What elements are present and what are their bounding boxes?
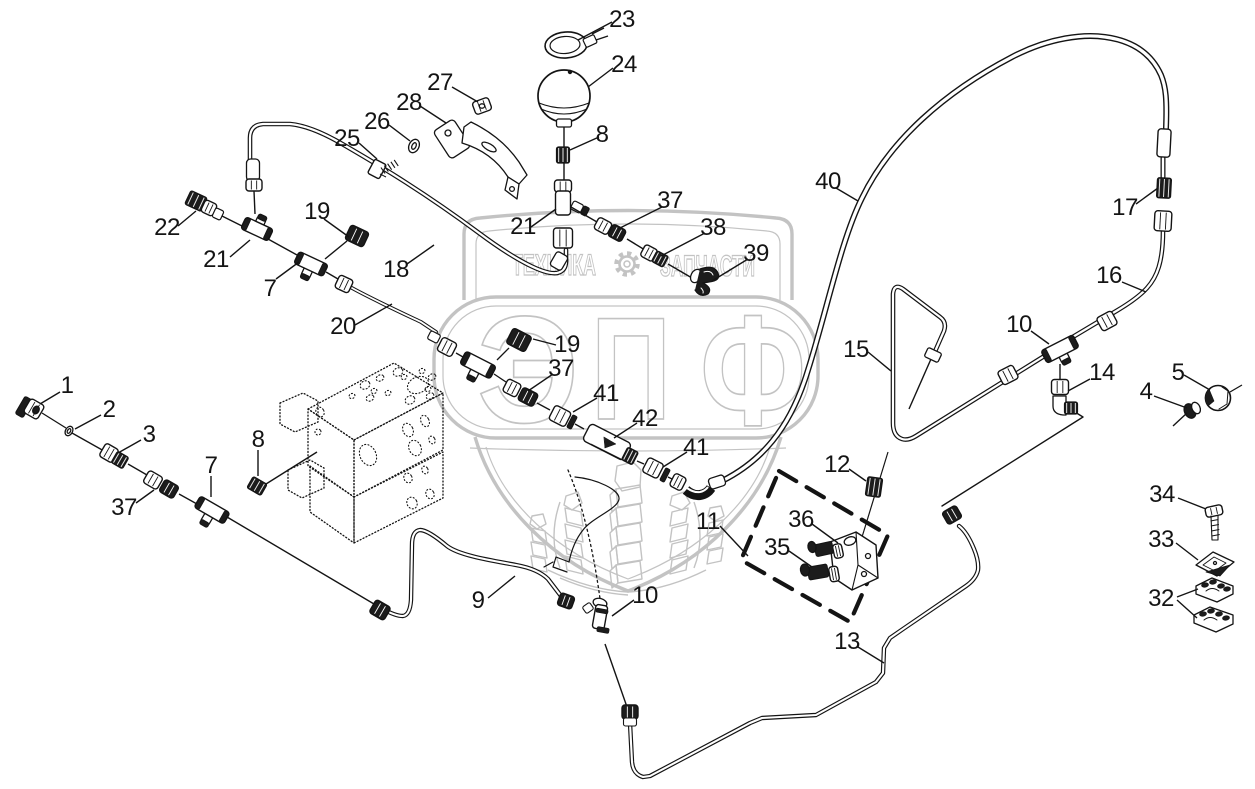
svg-text:27: 27	[427, 69, 453, 96]
svg-text:7: 7	[205, 452, 218, 479]
svg-text:15: 15	[843, 336, 869, 363]
svg-text:41: 41	[593, 380, 619, 407]
svg-text:19: 19	[304, 198, 330, 225]
svg-text:32: 32	[1148, 585, 1174, 612]
svg-text:34: 34	[1149, 481, 1175, 508]
svg-text:42: 42	[632, 405, 658, 432]
svg-text:2: 2	[103, 396, 116, 423]
svg-text:33: 33	[1148, 526, 1174, 553]
svg-text:4: 4	[1140, 378, 1153, 405]
svg-text:35: 35	[764, 534, 790, 561]
svg-text:28: 28	[396, 89, 422, 116]
svg-text:41: 41	[683, 434, 709, 461]
svg-text:37: 37	[111, 494, 137, 521]
svg-text:23: 23	[609, 6, 635, 33]
svg-text:11: 11	[696, 508, 720, 535]
svg-text:19: 19	[554, 331, 580, 358]
svg-text:39: 39	[743, 240, 769, 267]
svg-text:12: 12	[824, 451, 850, 478]
svg-text:8: 8	[252, 426, 265, 453]
svg-text:П: П	[591, 287, 671, 450]
svg-text:5: 5	[1172, 359, 1185, 386]
svg-text:10: 10	[1006, 311, 1032, 338]
svg-text:17: 17	[1112, 194, 1138, 221]
svg-text:37: 37	[548, 355, 574, 382]
svg-text:14: 14	[1089, 359, 1115, 386]
svg-text:37: 37	[657, 187, 683, 214]
svg-text:18: 18	[383, 256, 409, 283]
svg-text:Ф: Ф	[700, 283, 806, 459]
svg-text:26: 26	[364, 108, 390, 135]
svg-text:38: 38	[700, 214, 726, 241]
svg-text:21: 21	[510, 213, 536, 240]
svg-text:22: 22	[154, 214, 180, 241]
svg-text:36: 36	[788, 506, 814, 533]
svg-text:25: 25	[334, 125, 360, 152]
svg-text:10: 10	[632, 582, 658, 609]
svg-text:9: 9	[472, 587, 485, 614]
svg-text:21: 21	[203, 246, 229, 273]
svg-text:24: 24	[611, 51, 637, 78]
svg-text:1: 1	[61, 372, 74, 399]
svg-text:13: 13	[834, 628, 860, 655]
svg-text:16: 16	[1096, 262, 1122, 289]
svg-text:3: 3	[143, 421, 156, 448]
svg-text:7: 7	[264, 275, 277, 302]
svg-text:40: 40	[815, 168, 841, 195]
svg-text:8: 8	[596, 121, 609, 148]
svg-text:20: 20	[330, 313, 356, 340]
